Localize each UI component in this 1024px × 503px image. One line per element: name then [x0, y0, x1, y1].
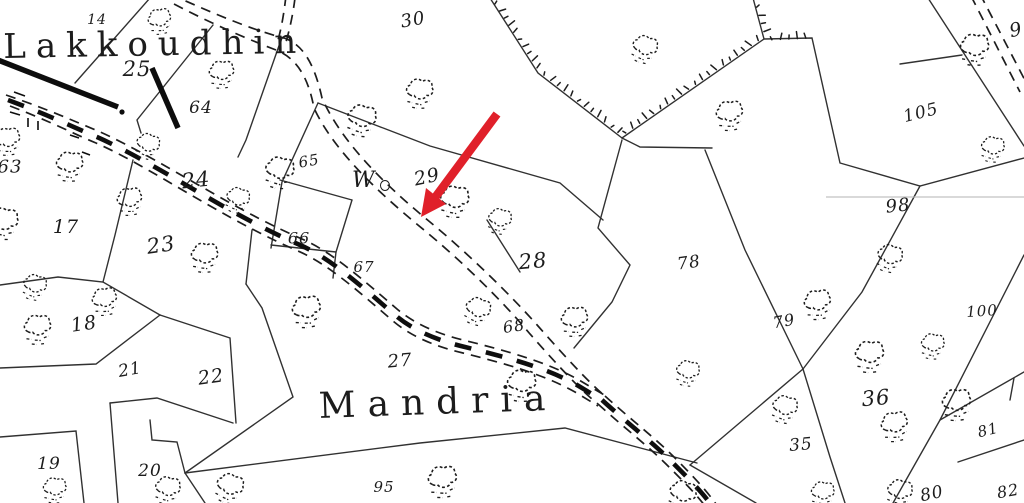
hachure-tick [642, 113, 647, 118]
tree-icon [675, 360, 700, 387]
hachure-tick [532, 56, 537, 61]
tree-icon [208, 59, 236, 89]
hachure-tick [557, 83, 560, 86]
hachure-tick [618, 128, 622, 132]
hachure-tick [623, 131, 626, 133]
hachure-tick [598, 110, 601, 116]
tree-icon [290, 294, 324, 330]
tree-icon [981, 136, 1005, 162]
parcel-number-18: 18 [70, 311, 99, 336]
parcel-number-22: 22 [197, 364, 226, 389]
tree-icon [811, 482, 834, 503]
parcel-number-20: 20 [138, 461, 162, 481]
tree-icon [960, 33, 990, 66]
hachure-tick [604, 117, 606, 122]
hachure-tick [804, 33, 806, 38]
tree-icon [667, 479, 698, 503]
hachure-tick [757, 5, 759, 7]
parcel-number-100: 100 [966, 301, 999, 321]
hachure-tick [734, 50, 737, 55]
tree-icon [0, 126, 23, 157]
hachure-tick [571, 91, 573, 96]
tree-icon [427, 464, 460, 500]
hachure-tick [551, 77, 556, 81]
hachure-tick [578, 100, 581, 102]
parcel-number-30: 30 [399, 7, 427, 32]
hachure-tick [684, 86, 688, 89]
hachure-tick [711, 65, 717, 70]
tree-icon [0, 208, 18, 240]
hachure-tick [537, 63, 540, 67]
tree-icon [213, 471, 245, 503]
parcel-number-17: 17 [53, 216, 79, 238]
tree-icon [802, 287, 834, 321]
parcel-number-65: 65 [297, 150, 321, 171]
parcel-number-35: 35 [788, 434, 813, 456]
parcel-number-14: 14 [87, 12, 107, 28]
tree-icon [462, 295, 492, 327]
hachure-tick [591, 108, 593, 111]
tree-icon [21, 273, 47, 301]
tree-icon [487, 208, 513, 236]
hachure-tick [665, 98, 668, 104]
hachure-tick [695, 81, 696, 84]
parcel-number-21: 21 [117, 358, 144, 382]
hachure-tick [528, 51, 531, 53]
hachure-tick [745, 41, 751, 45]
parcel-number-19: 19 [37, 454, 61, 474]
hachure-tick [638, 120, 640, 124]
hachure-tick [564, 85, 568, 91]
well-letter: W [352, 168, 375, 193]
well-circle-icon [380, 180, 390, 191]
tree-icon [346, 104, 377, 138]
tree-icon [771, 394, 799, 424]
tree-icon [875, 243, 904, 274]
hachure-tick [631, 122, 633, 128]
hachure-tick [504, 16, 508, 18]
parcel-number-80: 80 [918, 482, 945, 503]
parcel-number-98: 98 [885, 194, 912, 217]
parcel-number-23: 23 [145, 231, 177, 259]
hachure-tick [722, 60, 723, 65]
hachure-tick [500, 9, 506, 11]
parcel-number-36: 36 [861, 385, 892, 411]
tree-icon [630, 34, 660, 66]
parcel-number-67: 67 [353, 258, 374, 276]
hachure-tick [672, 96, 674, 99]
hachure-tick [509, 21, 515, 25]
parcel-number-25: 25 [123, 57, 152, 81]
tree-icon [56, 151, 84, 181]
hachure-tick [611, 125, 614, 127]
hachure-tick [523, 44, 529, 46]
place-name-lakkoudhin: Lakkoudhin [3, 22, 307, 67]
hachure-tick [584, 102, 589, 106]
tree-icon [224, 186, 251, 215]
tree-icon [191, 242, 220, 273]
hachure-tick [764, 29, 771, 32]
hachure-tick [741, 47, 744, 50]
hachure-tick [660, 105, 661, 108]
tree-icon [879, 409, 912, 444]
map-scan: LakkoudhinMandria14256463652417236667292… [0, 0, 1024, 503]
tree-icon [921, 334, 944, 360]
parcel-number-79: 79 [771, 310, 796, 333]
parcel-number-66: 66 [288, 229, 310, 248]
tree-icon [43, 477, 67, 503]
hachure-tick [729, 57, 730, 60]
hachure-tick [761, 23, 765, 24]
tree-icon [714, 99, 745, 133]
tree-icon [406, 79, 433, 109]
hachure-tick [514, 28, 517, 32]
hachure-tick [757, 36, 759, 41]
tree-icon [854, 340, 885, 374]
parcel-number-95: 95 [373, 478, 394, 496]
parcel-number-68: 68 [502, 315, 527, 337]
hachure-tick [650, 110, 654, 113]
parcel-number-64: 64 [189, 98, 213, 118]
hachure-tick [796, 32, 797, 39]
parcel-number-78: 78 [676, 251, 702, 274]
parcel-number-63: 63 [0, 157, 22, 178]
tree-icon [23, 314, 53, 346]
place-name-mandria: Mandria [318, 378, 558, 427]
hachure-tick [495, 1, 497, 4]
red-arrow-shaft [434, 114, 497, 199]
hachure-tick [700, 74, 703, 79]
hachure-tick [677, 89, 682, 94]
tree-icon [265, 156, 295, 189]
hachure-tick [544, 72, 545, 75]
parcel-number-28: 28 [518, 248, 549, 274]
parcel-number-27: 27 [387, 349, 414, 372]
parcel-number-24: 24 [180, 167, 211, 194]
scan-artifact-line [826, 196, 1024, 198]
hachure-tick [707, 72, 710, 75]
parcel-number-82: 82 [995, 480, 1020, 503]
well-label: W [352, 168, 390, 193]
